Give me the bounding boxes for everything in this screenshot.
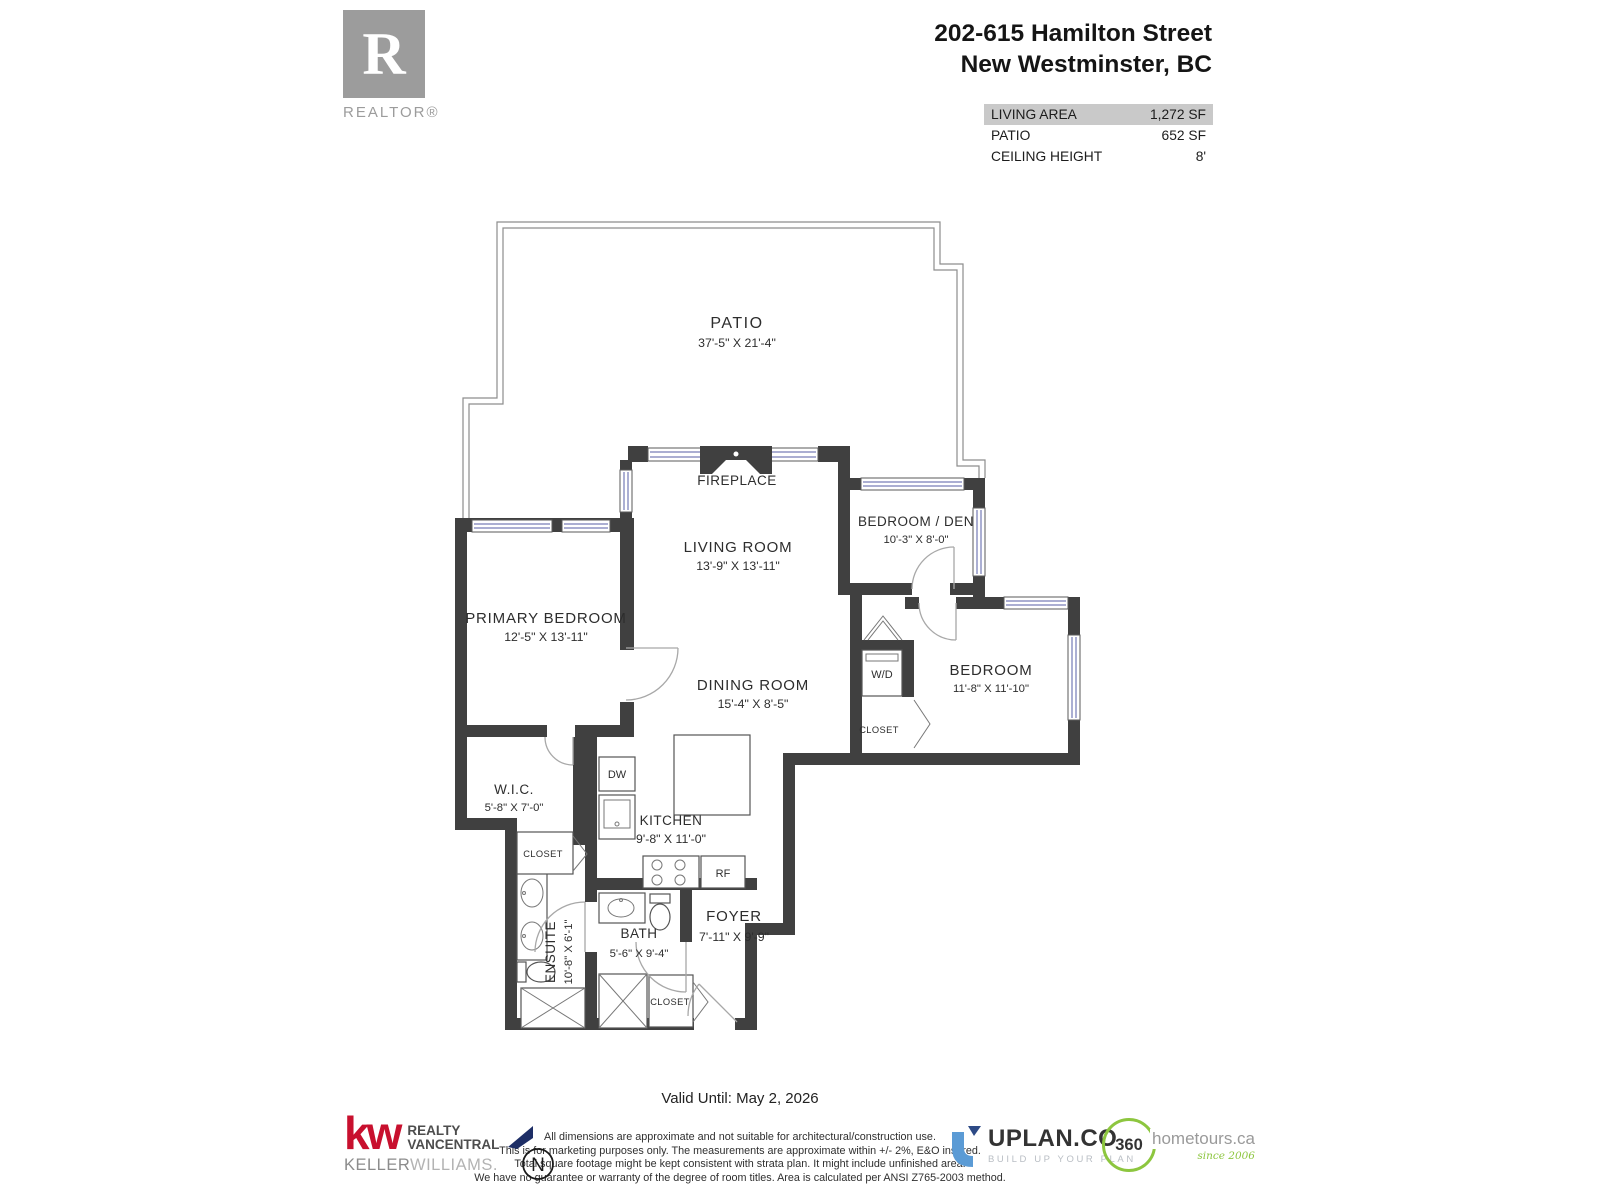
patio-dims: 37'-5" X 21'-4" (698, 336, 776, 350)
360-number: 360 (1115, 1136, 1143, 1155)
closet-door-chevron-icon (914, 700, 930, 748)
closet-label-right: CLOSET (859, 725, 899, 735)
360-circle-icon: 360 (1102, 1118, 1156, 1172)
kw-mark: kw (344, 1114, 399, 1152)
kw-keller: KELLER (344, 1156, 410, 1174)
address-line2: New Westminster, BC (840, 49, 1212, 80)
realtor-r-letter: R (362, 24, 405, 84)
kitchen-island-icon (674, 735, 750, 815)
floorplan-drawing: PATIO 37'-5" X 21'-4" FIREPLACE LIVING R… (440, 200, 1100, 1080)
north-letter: N (531, 1155, 545, 1176)
360hometours-logo: 360 hometours.ca since 2006 (1102, 1118, 1255, 1172)
dining-room-dims: 15'-4" X 8'-5" (718, 697, 789, 711)
hometours-name: hometours.ca (1150, 1129, 1255, 1149)
kitchen-dims: 9'-8" X 11'-0" (636, 832, 706, 846)
primary-bedroom-dims: 12'-5" X 13'-11" (504, 630, 588, 644)
keller-williams-logo: kw REALTY VANCENTRAL KELLERWILLIAMS. (344, 1114, 504, 1175)
kitchen-label: KITCHEN (640, 813, 703, 828)
bifold-door-icon (864, 616, 902, 640)
foyer-dims: 7'-11" X 9'-9" (699, 930, 769, 944)
ensuite-dims: 10'-8" X 6'-1" (563, 919, 575, 984)
stat-label: PATIO (991, 127, 1030, 144)
uplan-icon (948, 1126, 982, 1170)
bath-label: BATH (620, 926, 657, 941)
bedroom-den-dims: 10'-3" X 8'-0" (883, 534, 948, 546)
bath-dims: 5'-6" X 9'-4" (610, 948, 669, 960)
stat-label: LIVING AREA (991, 106, 1077, 123)
realtor-logo: R REALTOR® (343, 10, 427, 121)
living-room-label: LIVING ROOM (684, 539, 793, 556)
kw-realty: REALTY (407, 1124, 499, 1138)
stat-value: 1,272 SF (1150, 106, 1206, 123)
property-address: 202-615 Hamilton Street New Westminster,… (840, 18, 1212, 80)
valid-until: Valid Until: May 2, 2026 (540, 1090, 940, 1107)
north-arrow: N (508, 1126, 558, 1189)
stat-row-living-area: LIVING AREA 1,272 SF (984, 104, 1213, 125)
stat-row-ceiling: CEILING HEIGHT 8' (984, 146, 1213, 167)
wic-label: W.I.C. (494, 782, 534, 797)
wd-label: W/D (871, 669, 892, 681)
primary-bedroom-label: PRIMARY BEDROOM (465, 610, 626, 627)
bedroom-label: BEDROOM (949, 662, 1032, 679)
closet-door-chevron-icon (693, 982, 708, 1022)
patio-label: PATIO (710, 315, 763, 332)
address-line1: 202-615 Hamilton Street (840, 18, 1212, 49)
bath-sink-icon (599, 893, 645, 923)
stat-label: CEILING HEIGHT (991, 148, 1102, 165)
area-stats-table: LIVING AREA 1,272 SF PATIO 652 SF CEILIN… (984, 104, 1213, 167)
bedroom-dims: 11'-8" X 11'-10" (953, 683, 1029, 695)
stove-icon (643, 856, 699, 888)
bedroom-den-label: BEDROOM / DEN (858, 514, 974, 529)
floorplan-page: R REALTOR® 202-615 Hamilton Street New W… (0, 0, 1600, 1200)
wic-dims: 5'-8" X 7'-0" (485, 802, 544, 814)
dw-label: DW (608, 769, 627, 781)
realtor-wordmark: REALTOR® (343, 104, 427, 121)
closet-label-foyer: CLOSET (650, 997, 690, 1007)
rf-label: RF (716, 868, 731, 880)
fireplace-icon (700, 446, 772, 474)
stat-value: 8' (1196, 148, 1206, 165)
stat-row-patio: PATIO 652 SF (984, 125, 1213, 146)
hometours-since: since 2006 (1150, 1150, 1255, 1162)
dining-room-label: DINING ROOM (697, 677, 809, 694)
ensuite-label: ENSUITE (543, 921, 558, 983)
ensuite-toilet-tank-icon (517, 962, 526, 982)
foyer-label: FOYER (706, 908, 762, 925)
living-room-dims: 13'-9" X 13'-11" (696, 559, 780, 573)
stat-value: 652 SF (1162, 127, 1206, 144)
closet-label-left: CLOSET (523, 849, 563, 859)
realtor-r-icon: R (343, 10, 425, 98)
north-arrow-icon: N (508, 1126, 558, 1184)
kw-vancentral: VANCENTRAL (407, 1138, 499, 1152)
kw-williams: WILLIAMS. (410, 1156, 498, 1174)
fireplace-label: FIREPLACE (697, 473, 777, 488)
bath-toilet-tank-icon (650, 894, 670, 903)
